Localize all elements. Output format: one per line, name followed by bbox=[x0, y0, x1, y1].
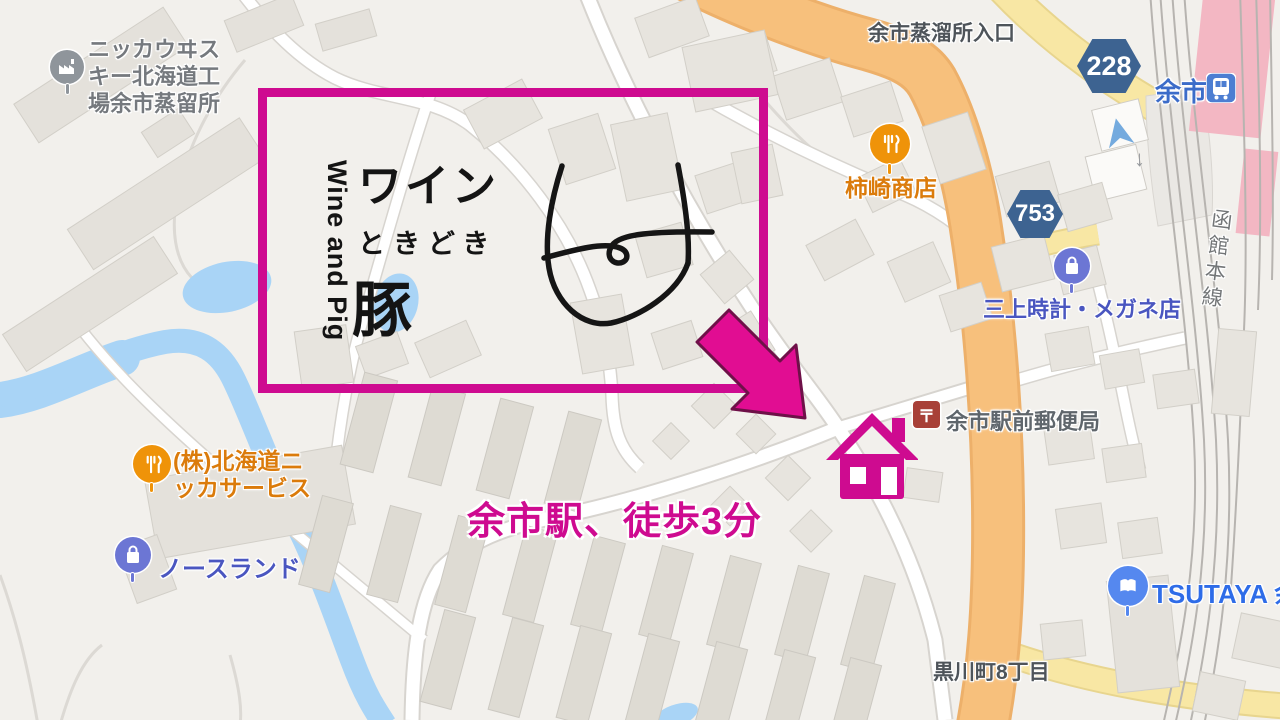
map[interactable]: ニッカウヰス キー北海道工 場余市蒸留所 余市蒸溜所入口 228 753 余市 … bbox=[0, 0, 1280, 720]
logo-line-tokidoki: ときどき bbox=[358, 222, 497, 261]
shopping-bag-icon-mikami[interactable] bbox=[1054, 248, 1090, 284]
poi-distillery[interactable]: ニッカウヰス キー北海道工 場余市蒸留所 bbox=[88, 36, 220, 117]
poi-nikka-line2: ッカサービス bbox=[173, 475, 311, 502]
road-label-distillery-entrance: 余市蒸溜所入口 bbox=[868, 17, 1015, 47]
book-store-icon-stem bbox=[1126, 606, 1129, 616]
poi-distillery-line3: 場余市蒸留所 bbox=[88, 90, 220, 117]
poi-post-office[interactable]: 余市駅前郵便局 bbox=[946, 404, 1100, 436]
house-marker-icon bbox=[826, 410, 918, 500]
poi-northland[interactable]: ノースランド bbox=[158, 549, 301, 584]
logo-line-wine: ワイン bbox=[358, 150, 499, 214]
station-label-yoichi[interactable]: 余市 bbox=[1155, 72, 1207, 109]
oneway-arrow: ↓ bbox=[1134, 146, 1145, 172]
pointer-arrow-icon bbox=[683, 298, 813, 428]
walk-time-note: 余市駅、徒歩3分 bbox=[467, 490, 762, 545]
factory-icon-stem bbox=[66, 84, 69, 94]
restaurant-icon-stem bbox=[888, 164, 891, 174]
shopping-bag-icon-northland[interactable] bbox=[115, 537, 151, 573]
road-label-kurokawa: 黒川町8丁目 bbox=[933, 656, 1050, 686]
post-office-glyph: 〒 bbox=[918, 402, 935, 427]
poi-mikami[interactable]: 三上時計・メガネ店 bbox=[983, 292, 1181, 324]
route-753-number: 753 bbox=[1015, 200, 1055, 228]
poi-tsutaya[interactable]: TSUTAYA 余市 bbox=[1152, 574, 1280, 611]
factory-icon[interactable] bbox=[50, 50, 84, 84]
logo-english-vertical: Wine and Pig bbox=[321, 160, 352, 341]
book-store-icon-tsutaya[interactable] bbox=[1108, 566, 1148, 606]
restaurant-icon-nikka-stem bbox=[150, 483, 153, 492]
train-station-icon[interactable] bbox=[1206, 73, 1236, 103]
poi-distillery-line1: ニッカウヰス bbox=[88, 36, 220, 63]
poi-nikka-service[interactable]: (株)北海道ニ ッカサービス bbox=[173, 448, 311, 502]
shopping-bag-icon-northland-stem bbox=[131, 573, 134, 582]
route-228-number: 228 bbox=[1086, 51, 1131, 82]
poi-kakizaki[interactable]: 柿崎商店 bbox=[845, 175, 937, 202]
logo-line-buta: 豚 bbox=[352, 262, 412, 349]
restaurant-icon-nikka-service[interactable] bbox=[133, 445, 171, 483]
poi-nikka-line1: (株)北海道ニ bbox=[173, 448, 311, 475]
restaurant-icon-kakizaki[interactable] bbox=[870, 124, 910, 164]
poi-distillery-line2: キー北海道工 bbox=[88, 63, 220, 90]
